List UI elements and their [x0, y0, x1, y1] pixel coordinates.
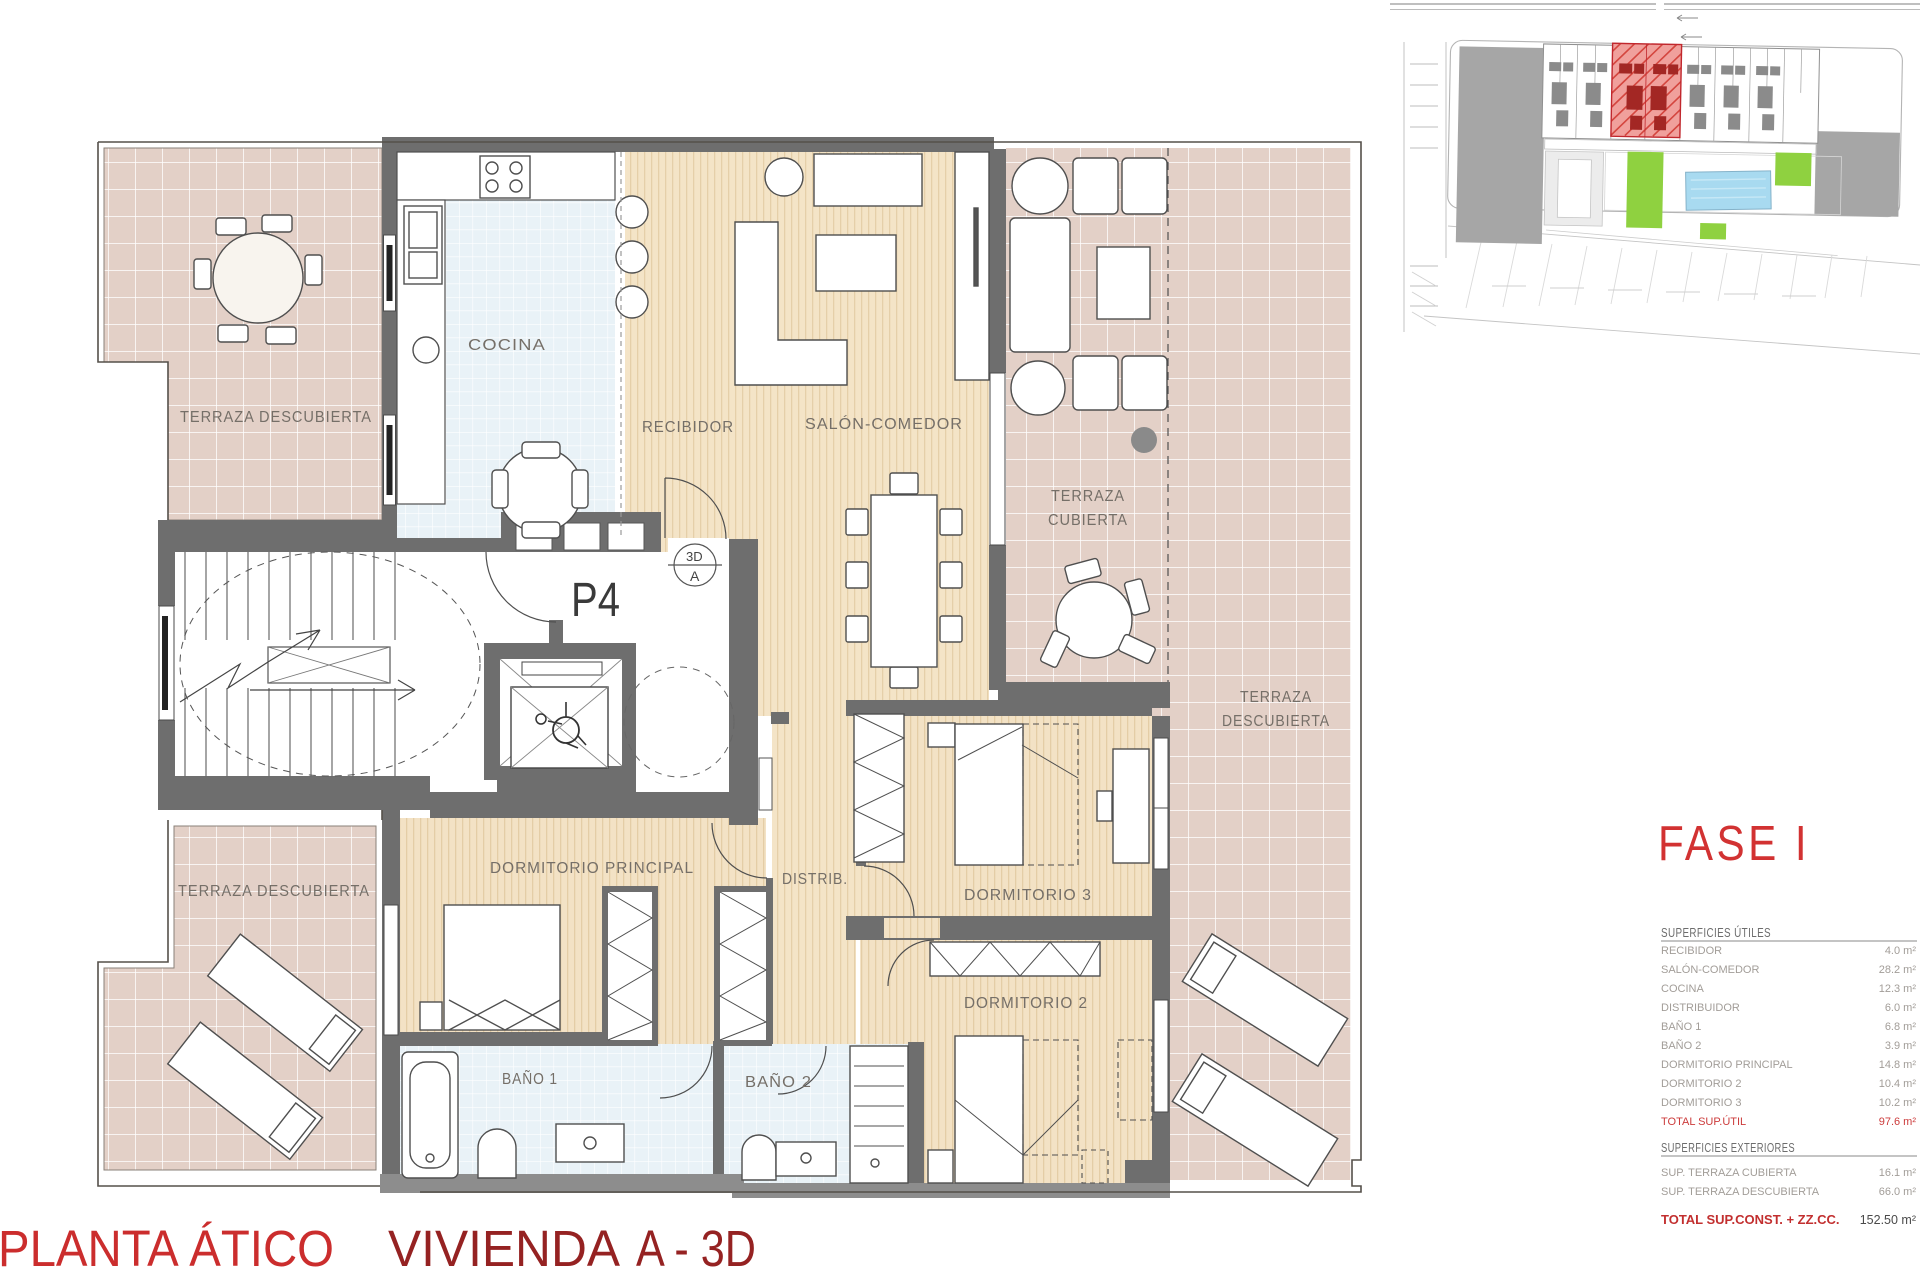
- svg-text:14.8 m²: 14.8 m²: [1879, 1059, 1917, 1071]
- svg-text:VIVIENDA: VIVIENDA: [388, 1220, 620, 1277]
- svg-text:DORMITORIO 3: DORMITORIO 3: [1661, 1097, 1741, 1109]
- svg-text:SALÓN-COMEDOR: SALÓN-COMEDOR: [805, 416, 963, 433]
- svg-text:TERRAZA: TERRAZA: [1051, 488, 1125, 505]
- svg-text:DORMITORIO 3: DORMITORIO 3: [964, 887, 1092, 904]
- svg-text:TERRAZA: TERRAZA: [1240, 689, 1312, 706]
- svg-text:6.8 m²: 6.8 m²: [1885, 1021, 1917, 1033]
- svg-text:COCINA: COCINA: [468, 337, 546, 354]
- svg-text:SUPERFICIES EXTERIORES: SUPERFICIES EXTERIORES: [1661, 1140, 1795, 1155]
- svg-text:FASE I: FASE I: [1658, 817, 1810, 871]
- svg-text:66.0 m²: 66.0 m²: [1879, 1186, 1917, 1198]
- svg-text:12.3 m²: 12.3 m²: [1879, 983, 1917, 995]
- svg-text:A: A: [690, 568, 700, 584]
- svg-text:4.0 m²: 4.0 m²: [1885, 945, 1917, 957]
- svg-text:SUPERFICIES ÚTILES: SUPERFICIES ÚTILES: [1661, 925, 1771, 940]
- svg-text:DORMITORIO 2: DORMITORIO 2: [1661, 1078, 1741, 1090]
- svg-text:TOTAL SUP.CONST. + ZZ.CC.: TOTAL SUP.CONST. + ZZ.CC.: [1661, 1212, 1840, 1227]
- svg-text:3D: 3D: [686, 549, 703, 564]
- svg-text:DISTRIBUIDOR: DISTRIBUIDOR: [1661, 1002, 1740, 1014]
- svg-text:DORMITORIO PRINCIPAL: DORMITORIO PRINCIPAL: [1661, 1059, 1793, 1071]
- svg-text:DORMITORIO 2: DORMITORIO 2: [964, 995, 1088, 1012]
- svg-text:28.2 m²: 28.2 m²: [1879, 964, 1917, 976]
- svg-text:97.6 m²: 97.6 m²: [1879, 1116, 1917, 1128]
- svg-text:BAÑO 1: BAÑO 1: [1661, 1020, 1701, 1033]
- svg-text:152.50 m²: 152.50 m²: [1860, 1213, 1916, 1227]
- svg-text:10.2 m²: 10.2 m²: [1879, 1097, 1917, 1109]
- svg-text:BAÑO 1: BAÑO 1: [502, 1071, 558, 1088]
- svg-text:DESCUBIERTA: DESCUBIERTA: [1222, 713, 1330, 730]
- svg-text:TERRAZA DESCUBIERTA: TERRAZA DESCUBIERTA: [178, 883, 370, 900]
- svg-text:SUP. TERRAZA CUBIERTA: SUP. TERRAZA CUBIERTA: [1661, 1167, 1797, 1179]
- svg-text:SUP. TERRAZA DESCUBIERTA: SUP. TERRAZA DESCUBIERTA: [1661, 1186, 1820, 1198]
- svg-text:DISTRIB.: DISTRIB.: [782, 871, 848, 888]
- svg-text:TERRAZA DESCUBIERTA: TERRAZA DESCUBIERTA: [180, 409, 372, 426]
- svg-text:3.9 m²: 3.9 m²: [1885, 1040, 1917, 1052]
- svg-text:RECIBIDOR: RECIBIDOR: [642, 419, 734, 436]
- svg-text:16.1 m²: 16.1 m²: [1879, 1167, 1917, 1179]
- svg-text:COCINA: COCINA: [1661, 983, 1704, 995]
- svg-text:RECIBIDOR: RECIBIDOR: [1661, 945, 1722, 957]
- svg-text:TOTAL SUP.ÚTIL: TOTAL SUP.ÚTIL: [1661, 1115, 1746, 1128]
- svg-text:SALÓN-COMEDOR: SALÓN-COMEDOR: [1661, 963, 1759, 976]
- svg-text:DORMITORIO PRINCIPAL: DORMITORIO PRINCIPAL: [490, 860, 694, 877]
- svg-text:P4: P4: [571, 574, 620, 627]
- svg-text:6.0 m²: 6.0 m²: [1885, 1002, 1917, 1014]
- svg-text:CUBIERTA: CUBIERTA: [1048, 512, 1128, 529]
- svg-text:BAÑO 2: BAÑO 2: [1661, 1039, 1701, 1052]
- svg-text:BAÑO 2: BAÑO 2: [745, 1074, 812, 1091]
- svg-text:A - 3D: A - 3D: [636, 1220, 756, 1277]
- svg-text:10.4 m²: 10.4 m²: [1879, 1078, 1917, 1090]
- svg-text:PLANTA ÁTICO: PLANTA ÁTICO: [0, 1220, 334, 1277]
